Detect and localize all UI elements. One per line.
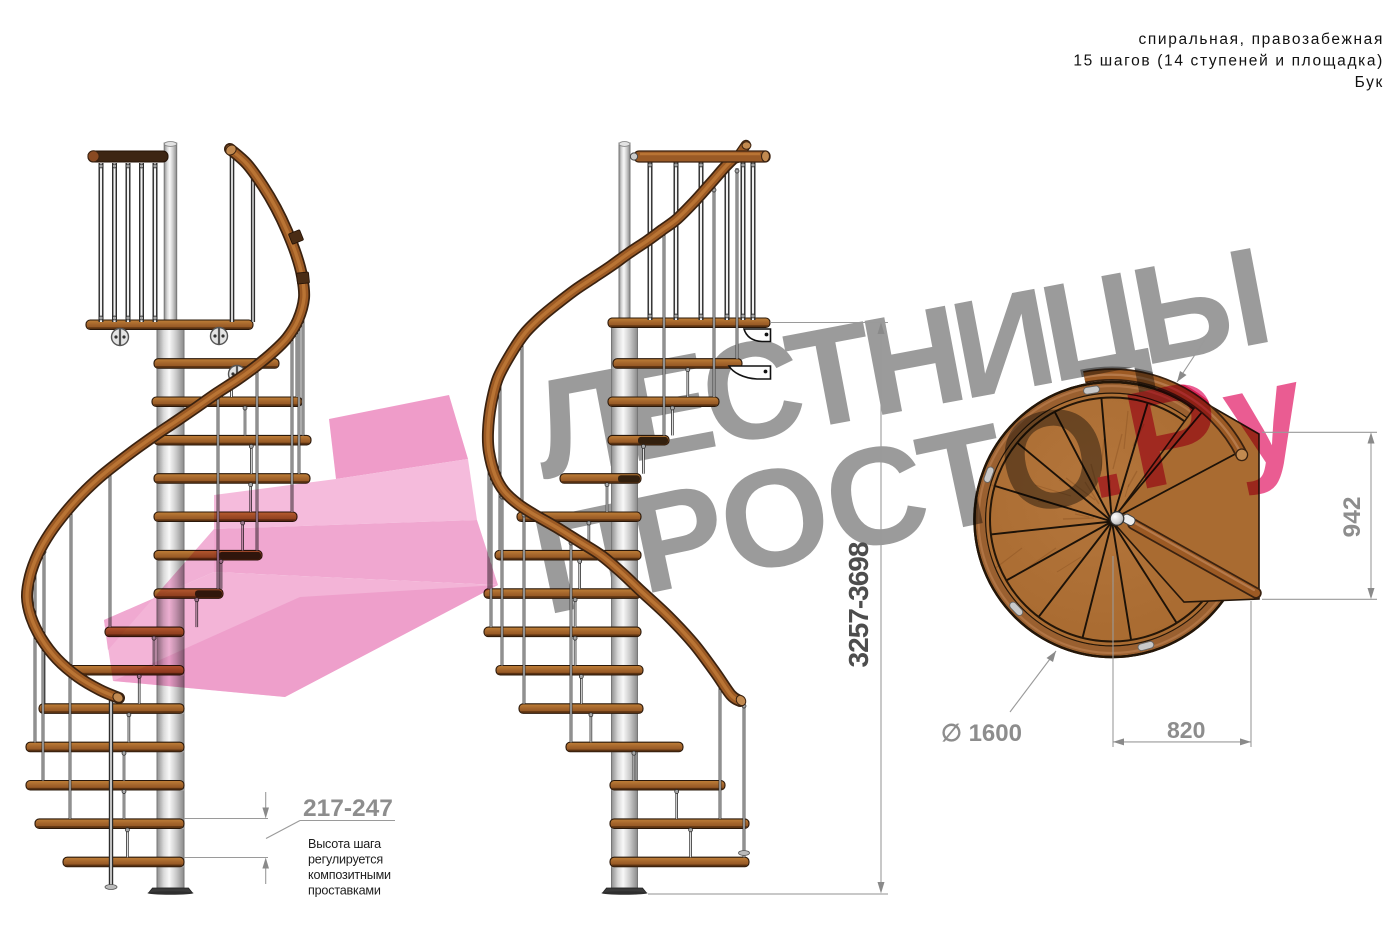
svg-text:3257-3698: 3257-3698	[843, 542, 874, 667]
svg-text:15 шагов (14 ступеней и площад: 15 шагов (14 ступеней и площадка)	[1073, 53, 1384, 70]
svg-text:820: 820	[1167, 717, 1205, 743]
svg-text:регулируется: регулируется	[308, 853, 383, 867]
svg-text:композитными: композитными	[308, 868, 391, 882]
svg-text:∅ 1600: ∅ 1600	[941, 720, 1022, 747]
svg-text:942: 942	[1339, 497, 1366, 538]
svg-text:Бук: Бук	[1355, 74, 1384, 91]
svg-text:проставками: проставками	[308, 884, 381, 898]
svg-text:Высота шага: Высота шага	[308, 837, 381, 851]
svg-text:спиральная, правозабежная: спиральная, правозабежная	[1138, 31, 1384, 48]
svg-text:217-247: 217-247	[303, 795, 393, 822]
